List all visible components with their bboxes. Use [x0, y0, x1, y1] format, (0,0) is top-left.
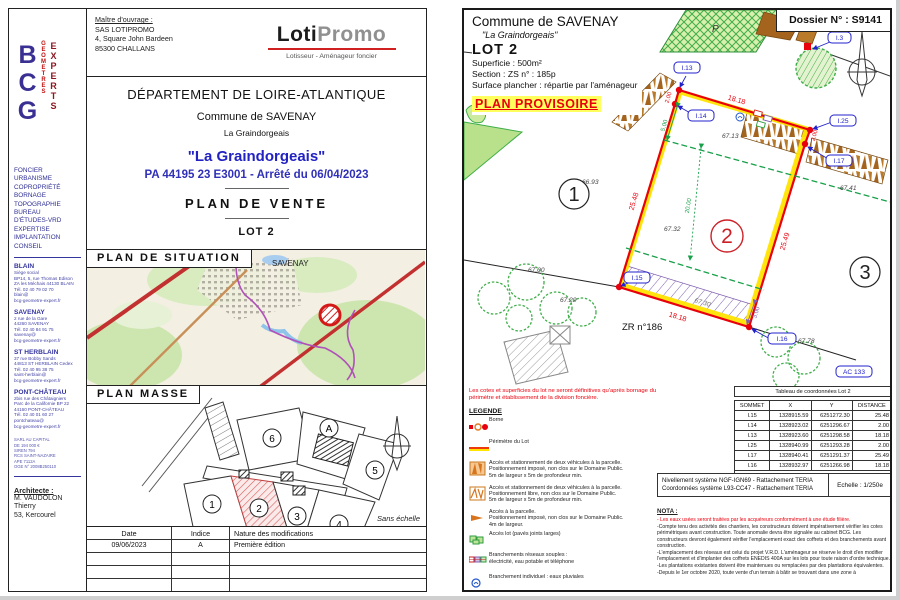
bcg-logo-geometres: GEOMETRES [41, 41, 47, 141]
architect-block: Architecte : M. VAUDOLON Thierry 53, Ker… [14, 486, 83, 521]
lot-header: Commune de SAVENAY "La Graindorgeais" LO… [472, 14, 642, 115]
masse-plan: 6 A 5 1 2 3 4 [87, 386, 425, 527]
table-row: I.151328915.596251272.3025.48 [735, 411, 892, 421]
provisional-stamp: PLAN PROVISOIRE [472, 96, 601, 112]
bcg-logo: BCG GEOMETRES EXPERTS [16, 41, 83, 141]
lot-number-2: 2 [721, 225, 733, 248]
svg-text:2.00: 2.00 [665, 91, 674, 104]
green-area [464, 122, 522, 180]
masse-section: PLAN MASSE [87, 386, 426, 527]
firm-registration: SARL AU CAPITAL DE 194 000 € SIREN 794 R… [14, 437, 83, 469]
reference-box: Nivellement système NGF-IGN69 - Rattache… [657, 473, 892, 497]
svg-text:25.48: 25.48 [627, 191, 641, 211]
parking-imposed-icon [469, 460, 489, 482]
lot-section: Section : ZS n° : 185p [472, 69, 638, 80]
lot-commune: Commune de SAVENAY [472, 14, 638, 29]
svg-text:67.29: 67.29 [560, 297, 577, 304]
zone-label: ZR n°186 [622, 322, 662, 333]
services-list: FONCIER URBANISME COPROPRIÉTÉ BORNAGE TO… [14, 167, 83, 251]
svg-text:67.78: 67.78 [798, 338, 815, 345]
situation-title: PLAN DE SITUATION [87, 250, 252, 268]
office-savenay: SAVENAY 2 rue de la Gare 44260 SAVENAY T… [14, 309, 83, 344]
client-block: Maître d'ouvrage : SAS LOTIPROMO 4, Squa… [95, 15, 245, 70]
svg-text:I.15: I.15 [632, 275, 643, 282]
masse-lot-a: A [326, 424, 333, 435]
borne-marker [804, 43, 811, 50]
masse-lot-6: 6 [269, 434, 275, 445]
situation-map: SAVENAY [87, 250, 425, 386]
permit-number: PA 44195 23 E3001 - Arrêté du 06/04/2023 [87, 169, 426, 181]
svg-text:I.3: I.3 [836, 35, 844, 42]
situation-section: PLAN DE SITUATION [87, 250, 426, 386]
svg-text:I.17: I.17 [834, 158, 845, 165]
table-row: 09/06/2023 A Première édition [87, 540, 426, 553]
svg-text:I.25: I.25 [838, 118, 849, 125]
svg-text:I.16: I.16 [777, 336, 788, 343]
lotipromo-logo: LotiPromo Lotisseur - Aménageur foncier [245, 15, 418, 70]
parking-free-icon [469, 485, 489, 507]
brand-underline [268, 48, 396, 50]
coordinates-table: Tableau de coordonnées Lot 2 SOMMET X Y … [734, 386, 892, 481]
bcg-logo-letters: BCG [16, 41, 39, 141]
svg-text:67.13: 67.13 [722, 133, 739, 140]
svg-text:25.49: 25.49 [778, 231, 792, 251]
masse-lot-1: 1 [209, 500, 215, 511]
parcel-label: AC 133 [843, 369, 865, 376]
office-blain: BLAIN Siège social BP14, 5, rue Thomas E… [14, 263, 83, 304]
project-title: "La Graindorgeais" [87, 148, 426, 165]
office-pont-chateau: PONT-CHÂTEAU 2bis rue des Châtaigniers P… [14, 389, 83, 430]
svg-text:I.13: I.13 [682, 65, 693, 72]
svg-text:I.14: I.14 [696, 113, 707, 120]
table-row [87, 553, 426, 566]
lot-area: Superficie : 500m² [472, 58, 638, 69]
lot-number-1: 1 [568, 184, 579, 206]
access-arrow-icon [469, 509, 489, 528]
disclaimer-note: Les cotes et superficies du lot ne seron… [469, 388, 677, 402]
paving-icon [469, 531, 489, 550]
page-edge-bottom [0, 596, 900, 600]
table-row: I.141328923.026251296.672.00 [735, 421, 892, 431]
document-title-block: DÉPARTEMENT DE LOIRE-ATLANTIQUE Commune … [87, 77, 426, 249]
scale-note: Sans échelle [377, 514, 420, 523]
place-title: La Graindorgeais [87, 128, 426, 138]
bcg-logo-experts: EXPERTS [49, 41, 58, 141]
lot-number-3: 3 [859, 262, 870, 284]
cartouche-header: Maître d'ouvrage : SAS LOTIPROMO 4, Squa… [87, 9, 426, 77]
lot-perimeter-icon [469, 439, 489, 458]
elevation-labels: 66.93 67.13 67.32 67.00 67.29 67.41 67.7… [528, 133, 857, 345]
svg-text:67.32: 67.32 [664, 226, 681, 233]
department-title: DÉPARTEMENT DE LOIRE-ATLANTIQUE [87, 87, 426, 102]
nota-block: NOTA : - Les eaux usées seront traitées … [657, 509, 892, 578]
doc-type-title: PLAN DE VENTE [87, 196, 426, 211]
lot-floor-area: Surface plancher : répartie par l'aménag… [472, 80, 638, 91]
modifications-table: Date Indice Nature des modifications 09/… [87, 527, 426, 591]
lot-subtitle: "La Graindorgeais" [482, 30, 638, 40]
table-row: I.251328940.996251293.282.00 [735, 441, 892, 451]
scale-value: Echelle : 1/250e [829, 474, 891, 496]
table-row [87, 566, 426, 579]
table-row [87, 579, 426, 591]
compass-icon [847, 32, 877, 96]
masse-lot-2: 2 [256, 504, 262, 515]
masse-lot-4: 4 [336, 520, 342, 527]
lot-label: LOT 2 [472, 42, 638, 58]
map-town-label: SAVENAY [272, 259, 309, 268]
borne-icon [469, 417, 489, 436]
office-st-herblain: ST HERBLAIN 37 rue Bobby Sands 44813 ST … [14, 349, 83, 384]
table-row: I.131328923.606251298.5818.18 [735, 431, 892, 441]
lot-title: LOT 2 [87, 226, 426, 238]
table-row: I.161328932.976251266.9818.18 [735, 461, 892, 471]
svg-text:67.41: 67.41 [840, 185, 857, 192]
page-edge-right [896, 0, 900, 600]
stormwater-icon [469, 574, 489, 592]
p-label: P [712, 24, 719, 35]
legend: LEGENDE Borne Périmètre du Lot Accès et … [469, 408, 679, 592]
utility-boxes-icon [469, 552, 489, 571]
svg-text:67.00: 67.00 [528, 267, 545, 274]
commune-title: Commune de SAVENAY [87, 111, 426, 123]
lot-plan-panel: 18.18 18.18 25.48 25.49 2.00 2.00 5.00 2… [462, 8, 892, 592]
svg-text:18.18: 18.18 [668, 310, 688, 324]
existing-tree [796, 48, 836, 88]
masse-lot-5: 5 [372, 466, 378, 477]
firm-sidebar: BCG GEOMETRES EXPERTS FONCIER URBANISME … [9, 9, 87, 591]
page: { "left_panel": { "logo": {"letters": "B… [0, 0, 900, 600]
masse-title: PLAN MASSE [87, 386, 200, 404]
depth-dim: 20.00 [685, 197, 694, 213]
dossier-number: Dossier N° : S9141 [776, 10, 890, 32]
table-row: I.171328940.416251291.3725.49 [735, 451, 892, 461]
title-block-panel: BCG GEOMETRES EXPERTS FONCIER URBANISME … [8, 8, 427, 592]
masse-lot-3: 3 [294, 512, 300, 523]
